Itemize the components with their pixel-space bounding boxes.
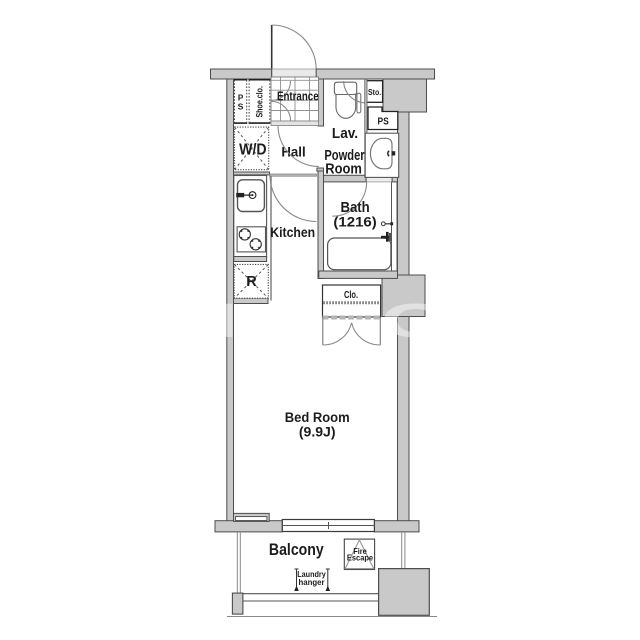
svg-text:hanger: hanger bbox=[299, 578, 326, 587]
svg-text:Lav.: Lav. bbox=[332, 125, 358, 142]
svg-text:Room: Room bbox=[325, 160, 362, 177]
svg-text:S: S bbox=[238, 101, 244, 111]
svg-text:Escape: Escape bbox=[347, 553, 374, 562]
svg-text:PS: PS bbox=[377, 116, 388, 127]
svg-text:Sto.: Sto. bbox=[368, 87, 381, 97]
svg-text:W/D: W/D bbox=[239, 141, 267, 158]
svg-text:(9.9J): (9.9J) bbox=[299, 424, 336, 440]
svg-text:Entrance: Entrance bbox=[277, 90, 319, 104]
svg-text:Shoe.clo.: Shoe.clo. bbox=[255, 86, 265, 118]
svg-text:Balcony: Balcony bbox=[269, 541, 325, 559]
svg-text:Clo.: Clo. bbox=[344, 290, 358, 301]
svg-text:R: R bbox=[246, 274, 257, 290]
svg-text:(1216): (1216) bbox=[333, 214, 377, 230]
svg-text:Kitchen: Kitchen bbox=[270, 225, 315, 240]
